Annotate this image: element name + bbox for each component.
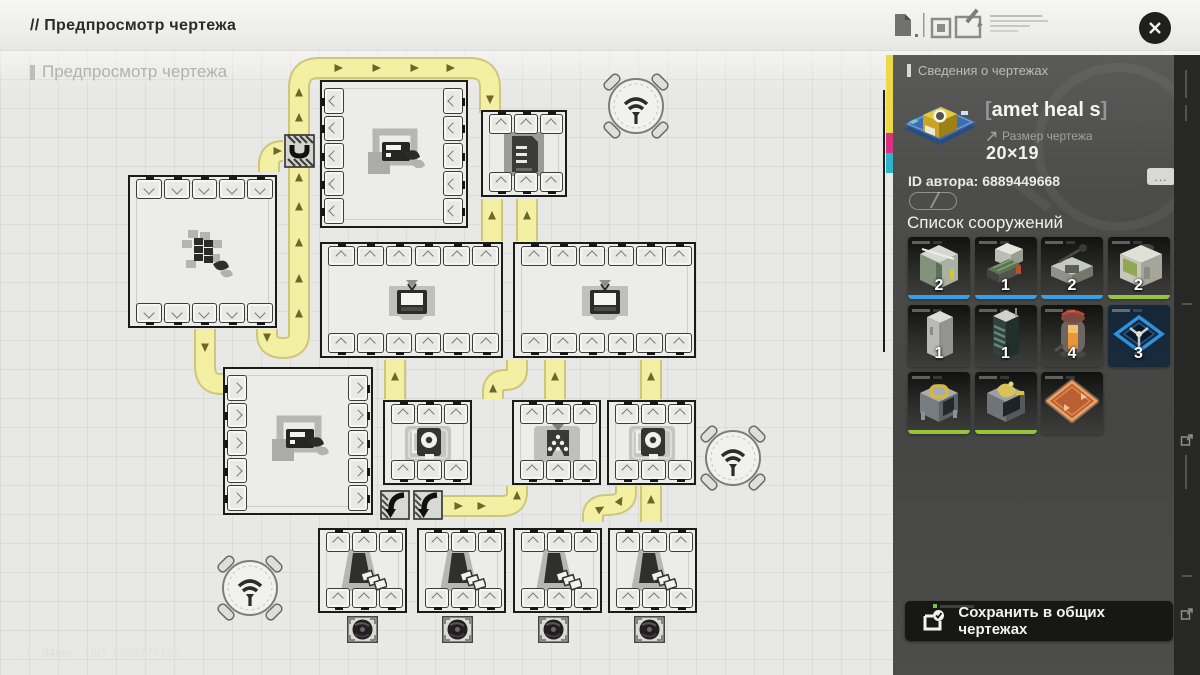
machine-miner-4 (608, 528, 697, 613)
tile-label (1133, 241, 1142, 244)
port (352, 532, 376, 552)
vent-fan (634, 616, 665, 643)
port (573, 404, 597, 424)
tile-label (1112, 241, 1130, 244)
expand-icon (986, 131, 997, 142)
conveyor-turner (380, 490, 410, 520)
port (668, 404, 692, 424)
machine-solar-left (128, 175, 277, 328)
port (574, 588, 598, 608)
panel-watermark-circle (1034, 63, 1174, 231)
blueprint-size-value: 20×19 (986, 143, 1039, 164)
port (443, 88, 463, 114)
tile-label (1045, 309, 1063, 312)
port (415, 246, 442, 266)
panel-divider-line (883, 90, 885, 352)
machine-miner-2 (417, 528, 506, 613)
port (668, 460, 692, 480)
port (425, 532, 449, 552)
crateo-structure-icon (908, 372, 970, 434)
uid-value: UID: 6493777722 (85, 646, 179, 660)
page-title: // Предпросмотр чертежа (30, 17, 236, 35)
port (579, 246, 606, 266)
structure-count: 1 (975, 277, 1037, 295)
tile-label (1133, 309, 1142, 312)
port (379, 532, 403, 552)
port (192, 303, 218, 323)
port (514, 114, 537, 134)
port (443, 143, 463, 169)
blueprint-size-row: Размер чертежа (986, 129, 1093, 143)
port (574, 532, 598, 552)
machine-proc-1 (383, 400, 472, 485)
port (227, 485, 247, 511)
tile-label (1045, 376, 1063, 379)
port (324, 198, 344, 224)
port (247, 179, 273, 199)
port (540, 114, 563, 134)
game-screen: Предпросмотр чертежа (0, 0, 1200, 675)
port (636, 246, 663, 266)
port (642, 532, 666, 552)
structure-tile-boxm[interactable]: 2 (1108, 237, 1170, 299)
structure-tile-pad[interactable] (1041, 372, 1103, 434)
ping-value: 84ms (42, 646, 71, 660)
port (386, 333, 413, 353)
port (348, 375, 368, 401)
port (514, 172, 537, 192)
tile-label (1112, 309, 1130, 312)
machines-layer (0, 50, 888, 675)
rail-vertical-text (1185, 70, 1187, 98)
port (665, 333, 692, 353)
port (616, 532, 640, 552)
port (219, 303, 245, 323)
port (642, 588, 666, 608)
machine-miner-1 (318, 528, 407, 613)
tile-label (1000, 309, 1009, 312)
close-icon (1148, 21, 1162, 35)
tile-label (1000, 241, 1009, 244)
port (227, 403, 247, 429)
top-bar: // Предпросмотр чертежа (0, 0, 1200, 51)
rail-vertical-text (1185, 105, 1187, 121)
structure-count: 3 (1108, 345, 1170, 363)
port (379, 588, 403, 608)
port (357, 333, 384, 353)
tile-label (933, 376, 942, 379)
port (324, 116, 344, 142)
tile-label (912, 241, 930, 244)
port (386, 246, 413, 266)
port (326, 532, 350, 552)
structure-count: 2 (1108, 277, 1170, 295)
port (489, 114, 512, 134)
tile-label (979, 309, 997, 312)
port (136, 179, 162, 199)
machine-depot-top (481, 110, 567, 197)
port (616, 588, 640, 608)
structure-tile-tower[interactable]: 1 (975, 305, 1037, 367)
port (247, 303, 273, 323)
status-dot (933, 604, 937, 608)
port (665, 246, 692, 266)
tile-label (979, 376, 997, 379)
rail-share-icon (1180, 433, 1194, 447)
port (608, 246, 635, 266)
structure-count: 4 (1041, 345, 1103, 363)
port (348, 485, 368, 511)
port (451, 588, 475, 608)
port (352, 588, 376, 608)
author-id: ID автора: 6889449668 (908, 173, 1060, 189)
port (573, 460, 597, 480)
port (615, 404, 639, 424)
machine-refiner-top (320, 80, 468, 228)
port (192, 179, 218, 199)
machine-wide-a (320, 242, 503, 358)
port (164, 303, 190, 323)
structure-count: 1 (975, 345, 1037, 363)
structure-tile-cratehand[interactable] (975, 372, 1037, 434)
port (451, 532, 475, 552)
structure-tile-furnace[interactable]: 4 (1041, 305, 1103, 367)
blueprint-thumbnail (901, 91, 979, 161)
port (425, 588, 449, 608)
header-bar-icon (907, 64, 911, 77)
port (550, 246, 577, 266)
port (417, 460, 441, 480)
structure-count: 2 (1041, 277, 1103, 295)
vent-fan (442, 616, 473, 643)
right-rail (1174, 55, 1200, 675)
rail-vertical-text (1185, 455, 1187, 489)
structure-tile-arm[interactable]: 2 (1041, 237, 1103, 299)
tile-label (1045, 241, 1063, 244)
structure-count: 2 (908, 277, 970, 295)
port (324, 143, 344, 169)
conveyor-splitter (284, 134, 315, 168)
port (324, 171, 344, 197)
port (328, 333, 355, 353)
structure-tile-assembler[interactable]: 2 (908, 237, 970, 299)
structures-list-title: Список сооружений (907, 213, 1063, 233)
port (478, 532, 502, 552)
port (478, 588, 502, 608)
tag-capsule-icon (909, 192, 957, 210)
port (489, 172, 512, 192)
port (227, 430, 247, 456)
cratehand-structure-icon (975, 372, 1037, 434)
tile-label (979, 241, 997, 244)
accent-magenta (886, 133, 893, 153)
tile-rarity-bar (1108, 295, 1170, 299)
port (520, 460, 544, 480)
vent-fan (538, 616, 569, 643)
pad-structure-icon (1041, 372, 1103, 434)
port (579, 333, 606, 353)
port (472, 246, 499, 266)
port (547, 588, 571, 608)
port (641, 460, 665, 480)
port (443, 333, 470, 353)
port (136, 303, 162, 323)
port (546, 404, 570, 424)
machine-miner-3 (513, 528, 602, 613)
blueprint-size-label: Размер чертежа (1002, 129, 1093, 143)
tile-label (933, 309, 942, 312)
conveyor-turner (413, 490, 443, 520)
port (550, 333, 577, 353)
port (443, 198, 463, 224)
rail-edit-icon (1180, 607, 1194, 621)
save-shared-blueprints-button[interactable]: Сохранить в общих чертежах (905, 601, 1173, 641)
port (444, 460, 468, 480)
port (608, 333, 635, 353)
port (547, 532, 571, 552)
top-bar-decorations (890, 0, 1090, 50)
port (520, 404, 544, 424)
port (391, 404, 415, 424)
port (348, 430, 368, 456)
tile-rarity-bar (975, 295, 1037, 299)
machine-refiner-mid (223, 367, 373, 515)
tile-label (1000, 376, 1009, 379)
status-bar: 84ms UID: 6493777722 (16, 646, 179, 660)
port (521, 333, 548, 353)
structure-count: 1 (908, 345, 970, 363)
port (521, 532, 545, 552)
port (324, 88, 344, 114)
structure-tile-cabinet[interactable]: 1 (908, 305, 970, 367)
save-blueprint-icon (919, 608, 944, 634)
tile-rarity-bar (975, 430, 1037, 434)
port (415, 333, 442, 353)
blueprint-info-panel: Сведения о чертежах [amet heal s] Размер… (893, 55, 1174, 675)
port (521, 588, 545, 608)
port (540, 172, 563, 192)
accent-cyan (886, 153, 893, 173)
signal-tower (212, 550, 288, 626)
port (443, 171, 463, 197)
structure-tile-crateo[interactable] (908, 372, 970, 434)
structure-tile-belt[interactable]: 1 (975, 237, 1037, 299)
tile-label (933, 241, 942, 244)
port (669, 588, 693, 608)
port (443, 246, 470, 266)
port (444, 404, 468, 424)
port (328, 246, 355, 266)
close-button[interactable] (1139, 12, 1171, 44)
document-icon (895, 14, 911, 36)
signal-icon (16, 647, 32, 659)
machine-wide-b (513, 242, 696, 358)
blueprint-name: [amet heal s] (985, 99, 1107, 122)
vent-fan (347, 616, 378, 643)
signal-tower (695, 420, 771, 496)
tile-rarity-bar (1041, 295, 1103, 299)
save-button-label: Сохранить в общих чертежах (958, 604, 1173, 638)
port (357, 246, 384, 266)
tile-label (912, 309, 930, 312)
port (472, 333, 499, 353)
port (615, 460, 639, 480)
more-options-button[interactable]: ... (1147, 168, 1174, 185)
rail-divider (1182, 303, 1192, 305)
structure-tile-diamond[interactable]: 3 (1108, 305, 1170, 367)
port (669, 532, 693, 552)
machine-proc-2 (512, 400, 601, 485)
port (348, 403, 368, 429)
tile-label (912, 376, 930, 379)
port (546, 460, 570, 480)
panel-header: Сведения о чертежах (907, 63, 1048, 78)
port (227, 458, 247, 484)
tile-label (1066, 309, 1075, 312)
port (326, 588, 350, 608)
machine-proc-3 (607, 400, 696, 485)
rail-divider (1182, 575, 1192, 577)
tile-label (1066, 241, 1075, 244)
tile-rarity-bar (908, 295, 970, 299)
tile-rarity-bar (908, 430, 970, 434)
port (443, 116, 463, 142)
port (348, 458, 368, 484)
port (219, 179, 245, 199)
tile-label (1066, 376, 1075, 379)
accent-yellow (886, 55, 893, 133)
panel-title: Сведения о чертежах (918, 63, 1048, 78)
port (164, 179, 190, 199)
sidebar-accent-strip (886, 55, 893, 675)
port (641, 404, 665, 424)
port (227, 375, 247, 401)
signal-tower (598, 68, 674, 144)
port (636, 333, 663, 353)
port (521, 246, 548, 266)
port (391, 460, 415, 480)
button-fine-print (940, 605, 974, 608)
port (417, 404, 441, 424)
